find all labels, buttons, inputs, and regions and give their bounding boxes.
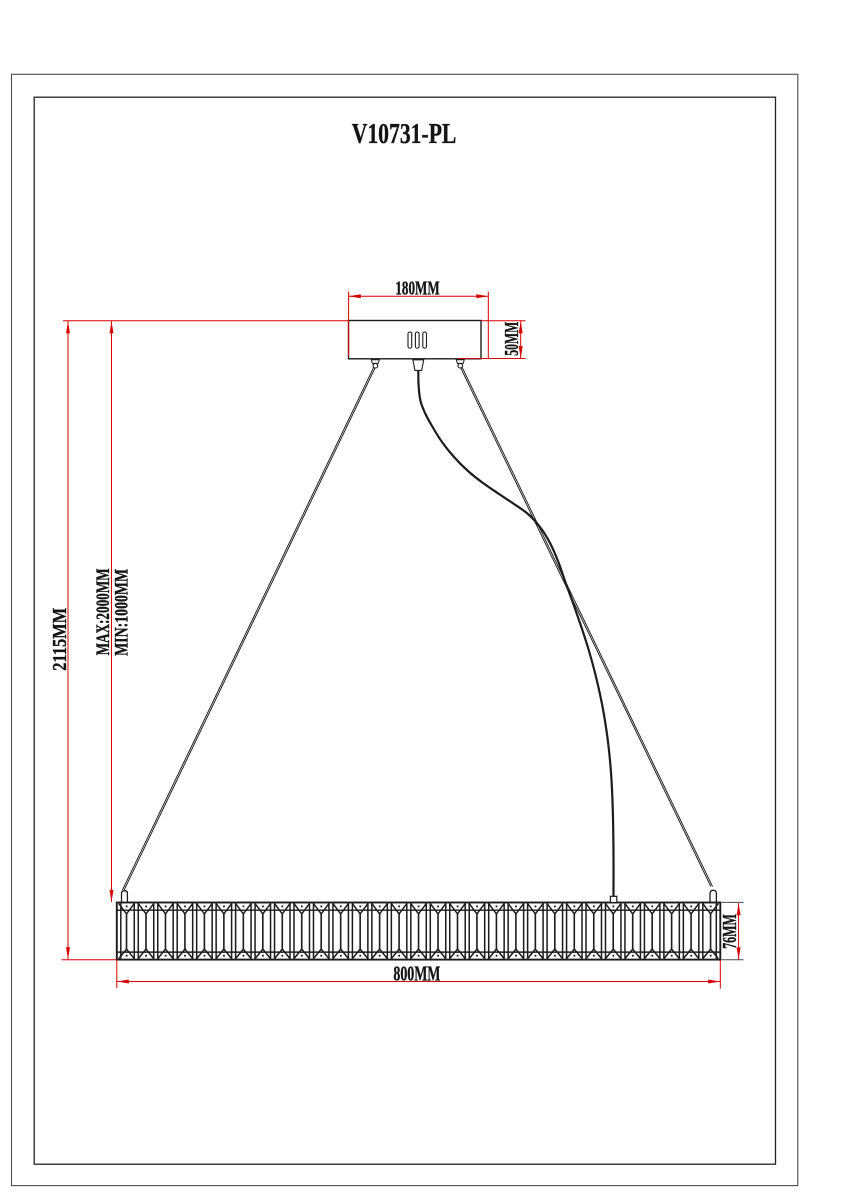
svg-text:800MM: 800MM <box>393 962 440 986</box>
svg-text:V10731-PL: V10731-PL <box>352 118 457 150</box>
svg-text:50MM: 50MM <box>501 322 523 356</box>
svg-text:MAX:2000MM: MAX:2000MM <box>94 568 114 655</box>
svg-text:76MM: 76MM <box>720 914 741 949</box>
svg-text:2115MM: 2115MM <box>49 608 71 671</box>
svg-text:180MM: 180MM <box>395 278 439 300</box>
svg-text:MIN:1000MM: MIN:1000MM <box>112 569 132 656</box>
